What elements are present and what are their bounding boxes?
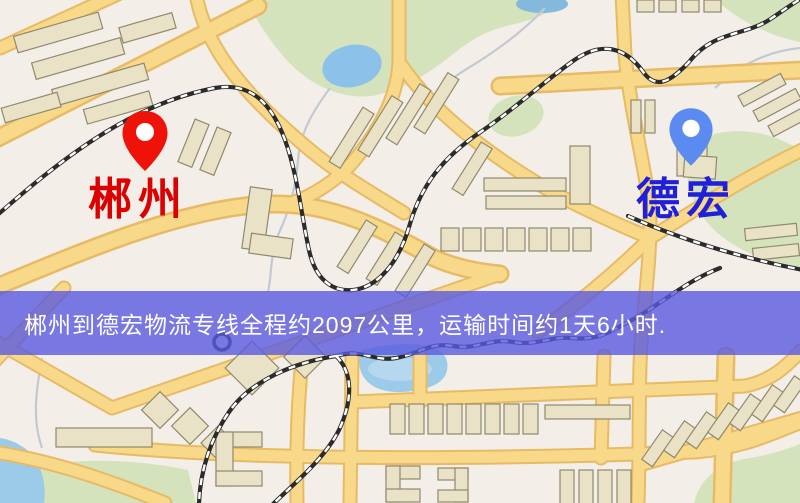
- origin-label: 郴州: [88, 178, 188, 222]
- destination-label: 德宏: [636, 178, 736, 222]
- origin-pin[interactable]: [121, 110, 169, 172]
- destination-pin[interactable]: [668, 107, 714, 167]
- route-info-banner: 郴州到德宏物流专线全程约2097公里，运输时间约1天6小时.: [0, 291, 800, 355]
- map-screenshot: 郴州 德宏 郴州到德宏物流专线全程约2097公里，运输时间约1天6小时.: [0, 0, 800, 503]
- destination-pin-hole: [682, 120, 699, 137]
- map-canvas: [0, 0, 800, 503]
- origin-pin-hole: [136, 123, 154, 141]
- banner-text: 郴州到德宏物流专线全程约2097公里，运输时间约1天6小时.: [24, 291, 666, 355]
